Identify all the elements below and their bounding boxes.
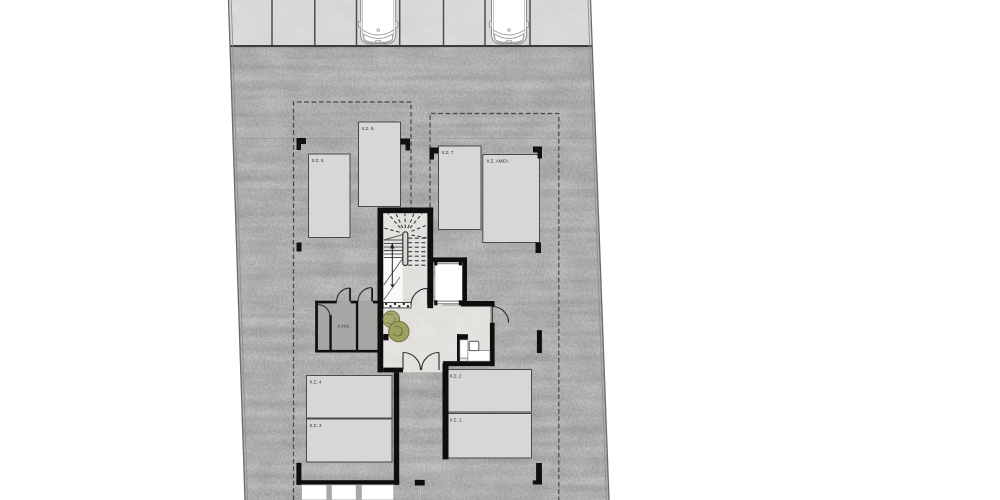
svg-text:Χ.Σ. 3: Χ.Σ. 3 [310, 423, 323, 428]
svg-text:Χ.Σ. 4: Χ.Σ. 4 [310, 380, 323, 385]
svg-text:Χ.Σ. 6: Χ.Σ. 6 [362, 126, 375, 131]
svg-text:Α.Η.Κ.: Α.Η.Κ. [338, 324, 351, 329]
svg-text:Χ.Σ. 1: Χ.Σ. 1 [450, 418, 463, 423]
svg-text:Χ.Σ. 5: Χ.Σ. 5 [312, 158, 325, 163]
svg-text:Χ.Σ. 7: Χ.Σ. 7 [442, 150, 455, 155]
svg-text:Χ.Σ. 2: Χ.Σ. 2 [450, 374, 463, 379]
svg-text:Χ.Σ. ΑΜΕΑ: Χ.Σ. ΑΜΕΑ [487, 159, 509, 164]
